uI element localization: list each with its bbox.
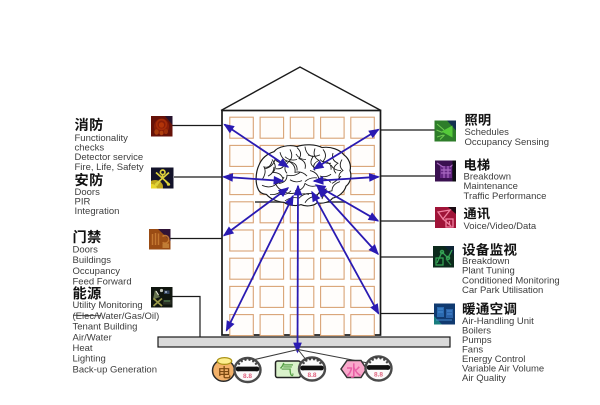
svg-text:Lighting: Lighting	[73, 354, 106, 365]
svg-text:Buildings: Buildings	[73, 255, 112, 266]
svg-text:Traffic Performance: Traffic Performance	[464, 191, 547, 202]
svg-text:Utility Monitoring: Utility Monitoring	[73, 300, 143, 311]
svg-text:Back-up Generation: Back-up Generation	[73, 364, 158, 375]
svg-text:8.8: 8.8	[374, 372, 383, 379]
svg-text:Integration: Integration	[75, 206, 120, 217]
svg-text:Car Park Utilisation: Car Park Utilisation	[462, 285, 543, 296]
svg-text:Air Quality: Air Quality	[462, 373, 506, 384]
svg-text:8.8: 8.8	[307, 372, 316, 379]
svg-text:Occupancy: Occupancy	[73, 266, 121, 277]
svg-text:Fire, Life, Safety: Fire, Life, Safety	[75, 162, 144, 173]
svg-text:(Elec/Water/Gas/Oil): (Elec/Water/Gas/Oil)	[73, 311, 160, 322]
svg-text:Feed Forward: Feed Forward	[73, 277, 132, 288]
svg-text:Occupancy Sensing: Occupancy Sensing	[465, 137, 550, 148]
svg-text:8.8: 8.8	[243, 373, 252, 380]
svg-text:Voice/Video/Data: Voice/Video/Data	[464, 221, 537, 232]
svg-text:Air/Water: Air/Water	[73, 332, 112, 343]
svg-text:Doors: Doors	[73, 244, 99, 255]
svg-text:Tenant Building: Tenant Building	[73, 322, 138, 333]
svg-text:Heat: Heat	[73, 343, 93, 354]
